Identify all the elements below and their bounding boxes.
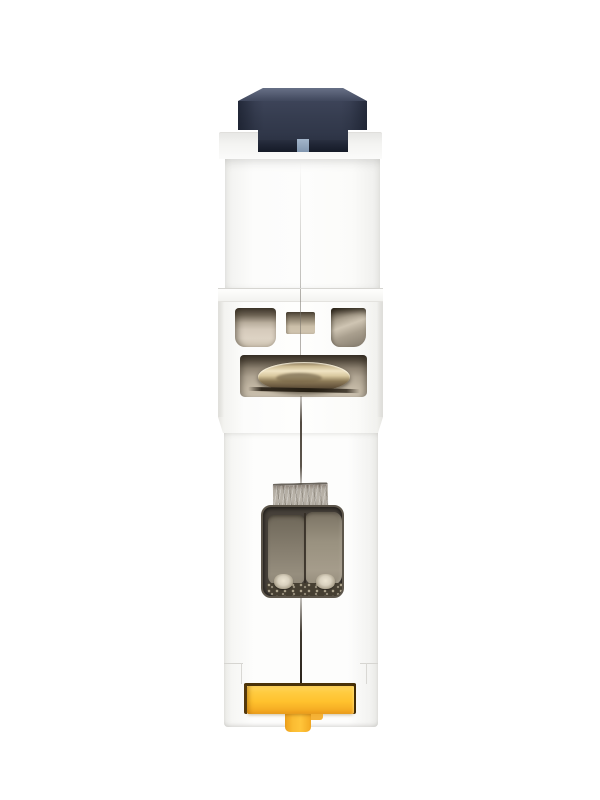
housing-edge-shade-right (377, 302, 383, 417)
clamp-wire (248, 387, 360, 393)
bottom-step-line-right (360, 663, 378, 664)
mould-seam-bottom (300, 597, 302, 686)
terminal-contact-left (274, 574, 293, 589)
toggle-wing-right (341, 101, 367, 130)
bottom-step-edge-right (366, 663, 367, 684)
clamp-window (240, 355, 367, 397)
din-clip-bar (247, 686, 354, 714)
din-clip-step (311, 714, 323, 720)
product-photo (0, 0, 600, 800)
vent-opening-left (235, 308, 276, 347)
terminal-pad-divider (304, 513, 306, 585)
clamp-ring-hole (276, 373, 322, 383)
din-clip-stem (285, 714, 311, 732)
upper-housing (225, 158, 380, 289)
toggle-position-indicator (297, 139, 309, 152)
vent-opening-right (331, 308, 366, 347)
terminal-contact-right (316, 574, 335, 589)
toggle-top-face (238, 88, 367, 101)
toggle-wing-left (238, 101, 264, 130)
housing-edge-shade-left (218, 302, 224, 417)
mould-seam-lower (300, 396, 302, 484)
bottom-step-edge-left (241, 663, 242, 684)
mould-seam-upper (300, 162, 301, 288)
mould-seam-middle (300, 289, 301, 355)
terminal-recess (261, 505, 344, 598)
